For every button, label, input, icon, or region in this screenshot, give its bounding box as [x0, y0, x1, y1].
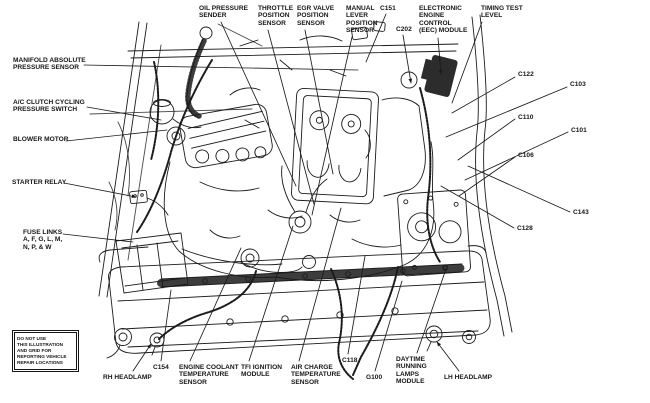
- leader-line-c154: [161, 290, 171, 361]
- callout-lh-headlamp: LH HEADLAMP: [444, 374, 492, 381]
- callout-tfi-ignition-module: TFI IGNITIONMODULE: [241, 364, 282, 379]
- callout-manual-lever-position-sensor: MANUALLEVERPOSITIONSENSOR: [346, 5, 378, 35]
- callout-manifold-absolute-pressure-sensor: MANIFOLD ABSOLUTEPRESSURE SENSOR: [13, 57, 86, 72]
- leader-line-c202: [403, 35, 411, 83]
- leader-line-c143: [468, 166, 570, 212]
- callout-c151: C151: [380, 5, 396, 12]
- callout-c154: C154: [153, 364, 169, 371]
- diagram-artwork: [0, 0, 650, 403]
- callout-ac-clutch-cycling-pressure-switch: A/C CLUTCH CYCLINGPRESSURE SWITCH: [13, 99, 85, 114]
- callout-oil-pressure-sender: OIL PRESSURESENDER: [199, 5, 248, 20]
- callout-daytime-running-lamps-module: DAYTIMERUNNINGLAMPSMODULE: [396, 356, 427, 386]
- callout-fuse-links: FUSE LINKSA, F, G, L, M,N, P, & W: [23, 229, 62, 251]
- leader-line-fuse-links: [63, 234, 133, 242]
- callout-electronic-engine-control-eec-module: ELECTRONICENGINECONTROL(EEC) MODULE: [419, 5, 467, 35]
- callout-c202: C202: [396, 26, 412, 33]
- callout-throttle-position-sensor: THROTTLEPOSITIONSENSOR: [258, 5, 293, 27]
- leader-line-c101: [465, 132, 568, 180]
- callout-c143: C143: [573, 209, 589, 216]
- leader-line-engine-coolant-temperature-sensor: [190, 248, 241, 361]
- leader-line-blower-motor: [66, 130, 167, 141]
- leader-line-throttle-position-sensor: [268, 30, 314, 204]
- leader-line-starter-relay: [64, 183, 136, 197]
- callout-c106: C106: [518, 152, 534, 159]
- leader-line-c106: [459, 157, 515, 196]
- callout-g100: G100: [366, 374, 382, 381]
- leader-line-rh-headlamp: [133, 344, 151, 371]
- leader-line-manual-lever-position-sensor: [312, 37, 352, 215]
- callout-c118: C118: [342, 357, 357, 364]
- callout-blower-motor: BLOWER MOTOR: [13, 136, 69, 143]
- callout-rh-headlamp: RH HEADLAMP: [103, 374, 152, 381]
- leader-line-c103: [446, 87, 567, 137]
- leader-line-c128: [441, 186, 514, 228]
- warning-line: REPAIR LOCATIONS: [17, 360, 74, 366]
- leader-line-lh-headlamp: [437, 342, 459, 371]
- callout-air-charge-temperature-sensor: AIR CHARGETEMPERATURESENSOR: [291, 364, 341, 386]
- leader-lines: [63, 14, 570, 371]
- engine-compartment-diagram: MANIFOLD ABSOLUTEPRESSURE SENSOROIL PRES…: [0, 0, 650, 403]
- leader-line-daytime-running-lamps-module: [417, 269, 446, 353]
- callout-engine-coolant-temperature-sensor: ENGINE COOLANTTEMPERATURESENSOR: [179, 364, 239, 386]
- leader-line-c122: [452, 77, 515, 113]
- callout-c103: C103: [570, 81, 586, 88]
- callout-c110: C110: [518, 114, 533, 121]
- leader-line-manifold-absolute-pressure-sensor: [84, 65, 358, 70]
- callout-starter-relay: STARTER RELAY: [12, 179, 66, 186]
- leader-line-c110: [458, 119, 515, 160]
- leader-line-egr-valve-position-sensor: [305, 30, 333, 174]
- warning-note-box: DO NOT USE THIS ILLUSTRATION AND GRID FO…: [14, 332, 77, 370]
- callout-c122: C122: [518, 71, 534, 78]
- callout-c128: C128: [517, 225, 533, 232]
- callout-timing-test-level: TIMING TESTLEVEL: [481, 5, 523, 20]
- callout-c101: C101: [571, 127, 587, 134]
- callout-egr-valve-position-sensor: EGR VALVEPOSITIONSENSOR: [297, 5, 334, 27]
- engine-art: [164, 21, 471, 280]
